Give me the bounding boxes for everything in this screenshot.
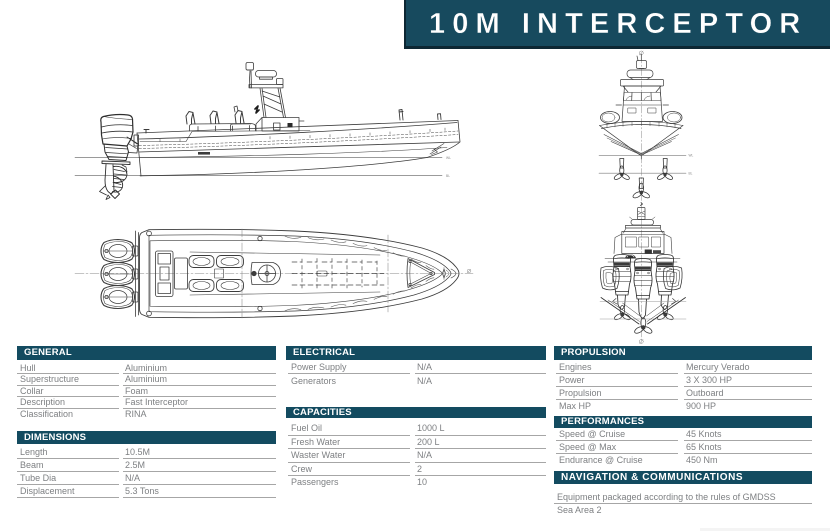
svg-text:BL: BL	[689, 172, 693, 176]
svg-text:BL: BL	[446, 174, 450, 178]
svg-text:WL: WL	[446, 156, 451, 160]
svg-text:WL: WL	[689, 154, 694, 158]
